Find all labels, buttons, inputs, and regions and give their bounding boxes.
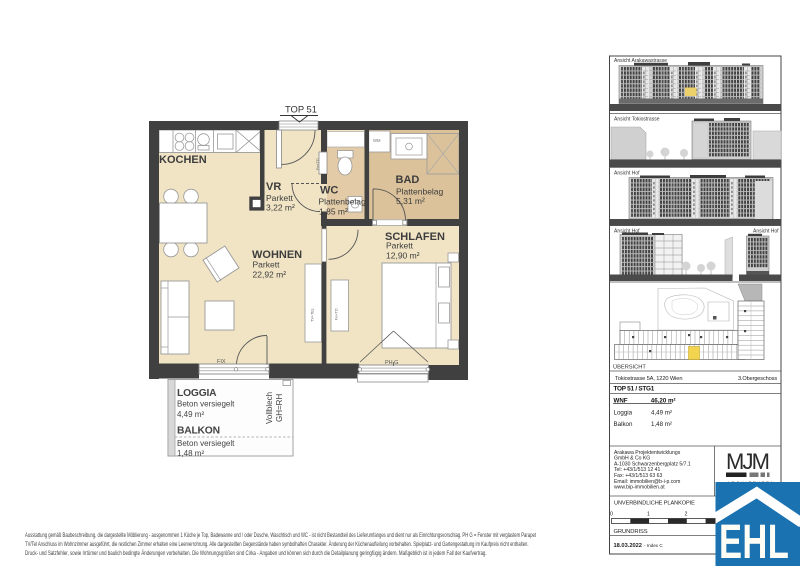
svg-text:Ansicht Hof: Ansicht Hof [753,229,779,235]
svg-text:4,49 m²: 4,49 m² [651,410,672,417]
svg-text:BAD: BAD [396,174,420,186]
svg-text:BALKON: BALKON [177,425,220,436]
svg-text:PH G: PH G [385,360,398,366]
svg-text:Fe+TD: Fe+TD [316,158,320,170]
svg-text:TOP 51 / STG1: TOP 51 / STG1 [614,386,655,393]
svg-text:Beton versiegelt: Beton versiegelt [177,400,235,409]
svg-text:Balkon: Balkon [614,421,633,428]
svg-text:TV+TEL: TV+TEL [311,308,315,322]
svg-text:TOP 51: TOP 51 [285,104,317,115]
svg-text:GH=RH: GH=RH [275,394,284,422]
svg-text:EHL: EHL [719,514,789,566]
svg-text:0: 0 [610,512,613,518]
svg-text:Parkett: Parkett [266,193,294,203]
svg-text:Ansicht Hof: Ansicht Hof [614,171,640,177]
svg-text:- Index C: - Index C [644,543,663,548]
svg-text:5,31 m²: 5,31 m² [396,196,425,206]
svg-text:MJM: MJM [726,449,770,474]
svg-text:WC: WC [320,184,338,196]
svg-text:Beton versiegelt: Beton versiegelt [177,439,235,448]
svg-text:4,49 m²: 4,49 m² [177,410,204,419]
svg-text:1,85 m²: 1,85 m² [319,206,348,216]
svg-text:Fe+TD: Fe+TD [335,308,339,320]
svg-text:Ansicht Tokiostrasse: Ansicht Tokiostrasse [614,117,660,123]
svg-text:UNVERBINDLICHE PLANKOPIE: UNVERBINDLICHE PLANKOPIE [614,501,695,507]
svg-text:Parkett: Parkett [253,259,281,269]
svg-text:FIX: FIX [217,359,226,365]
svg-text:VR: VR [266,181,281,193]
svg-text:Tokiostrasse 5A, 1220 Wien: Tokiostrasse 5A, 1220 Wien [615,376,682,382]
svg-text:Vollblech: Vollblech [265,392,274,424]
svg-text:WM: WM [373,138,381,143]
svg-text:Parkett: Parkett [386,241,414,251]
svg-text:18.03.2022: 18.03.2022 [614,543,642,549]
svg-text:2: 2 [685,512,688,518]
svg-text:12,90 m²: 12,90 m² [386,251,420,261]
svg-text:ÜBERSICHT: ÜBERSICHT [613,364,646,371]
svg-text:1,48 m²: 1,48 m² [177,449,204,458]
svg-text:3,22 m²: 3,22 m² [266,203,295,213]
svg-text:1,48 m²: 1,48 m² [651,421,672,428]
svg-text:3.Obergeschoss: 3.Obergeschoss [738,376,777,382]
svg-text:www.bip-immobilien.at: www.bip-immobilien.at [614,485,665,491]
svg-text:Loggia: Loggia [614,410,633,417]
svg-text:Plattenbelag: Plattenbelag [319,196,367,206]
svg-text:Plattenbelag: Plattenbelag [396,186,444,196]
svg-text:LOGGIA: LOGGIA [177,388,217,399]
svg-text:22,92 m²: 22,92 m² [253,270,287,280]
svg-text:1: 1 [647,512,650,518]
svg-text:KOCHEN: KOCHEN [159,154,207,166]
svg-text:GRUNDRISS: GRUNDRISS [614,529,648,535]
